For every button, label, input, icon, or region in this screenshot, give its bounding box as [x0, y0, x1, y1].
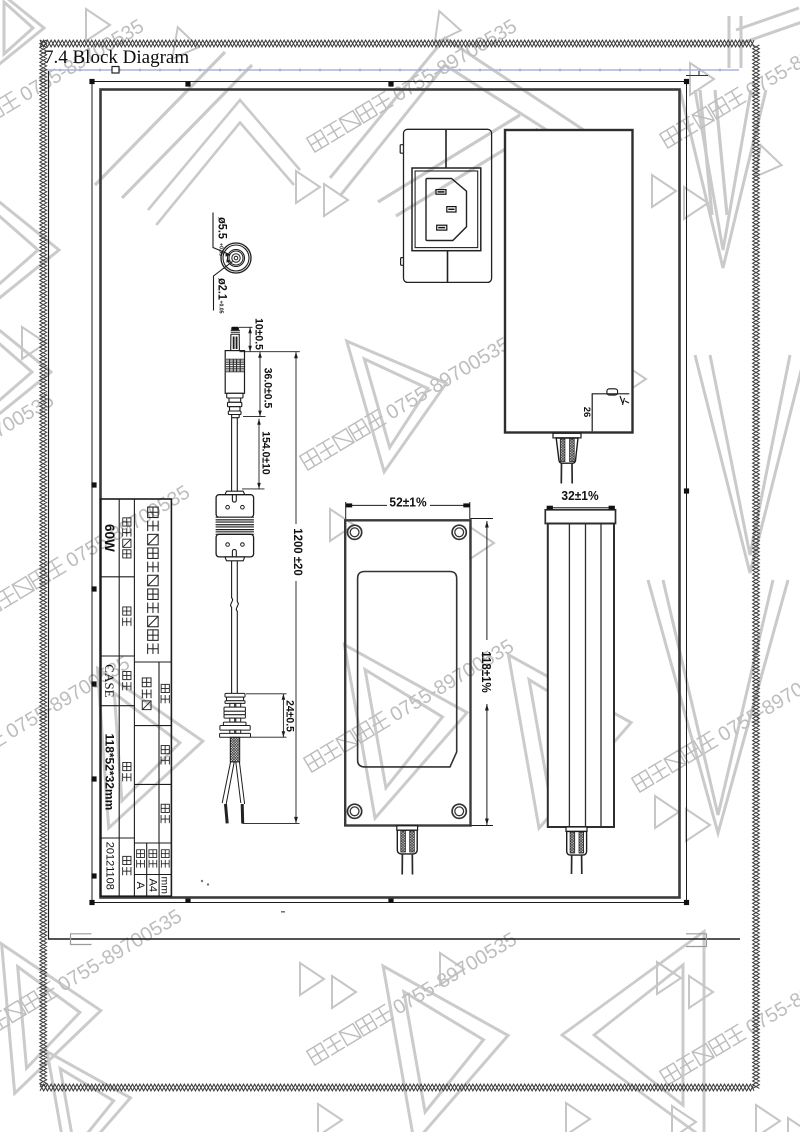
svg-text:10±0.5: 10±0.5: [252, 318, 264, 350]
svg-text:36.0±0.5: 36.0±0.5: [261, 368, 273, 409]
svg-text:ø5.5: ø5.5: [215, 217, 227, 239]
svg-text:118*52*32mm: 118*52*32mm: [102, 734, 116, 811]
svg-text:118±1%: 118±1%: [479, 651, 494, 693]
svg-text:26: 26: [581, 407, 592, 418]
svg-text:A: A: [134, 882, 146, 890]
svg-text:+0.05: +0.05: [218, 243, 224, 256]
svg-text:0755-89700535: 0755-89700535: [0, 389, 58, 480]
svg-text:mm: mm: [159, 877, 171, 895]
svg-text:0755-89700535: 0755-89700535: [742, 948, 800, 1039]
svg-text:0755-89700535: 0755-89700535: [389, 15, 520, 106]
svg-text:+0.05: +0.05: [218, 300, 224, 313]
svg-text:CASE: CASE: [102, 664, 117, 697]
svg-text:20121108: 20121108: [103, 842, 115, 890]
svg-text:60W: 60W: [102, 524, 117, 552]
svg-text:32±1%: 32±1%: [561, 488, 598, 503]
svg-text:0755-89700535: 0755-89700535: [62, 481, 193, 572]
svg-text:52±1%: 52±1%: [389, 495, 426, 510]
svg-text:1200 ±20: 1200 ±20: [291, 528, 304, 576]
svg-text:24±0.5: 24±0.5: [283, 700, 295, 732]
svg-text:0755-89700535: 0755-89700535: [386, 635, 517, 726]
svg-text:7.4 Block Diagram: 7.4 Block Diagram: [44, 47, 189, 68]
svg-text:ø2.1: ø2.1: [215, 278, 227, 300]
svg-text:154.0±10: 154.0±10: [259, 431, 271, 475]
svg-text:0755-89700535: 0755-89700535: [382, 333, 513, 424]
svg-text:0755-89700535: 0755-89700535: [54, 905, 185, 996]
svg-text:A4: A4: [146, 879, 158, 892]
